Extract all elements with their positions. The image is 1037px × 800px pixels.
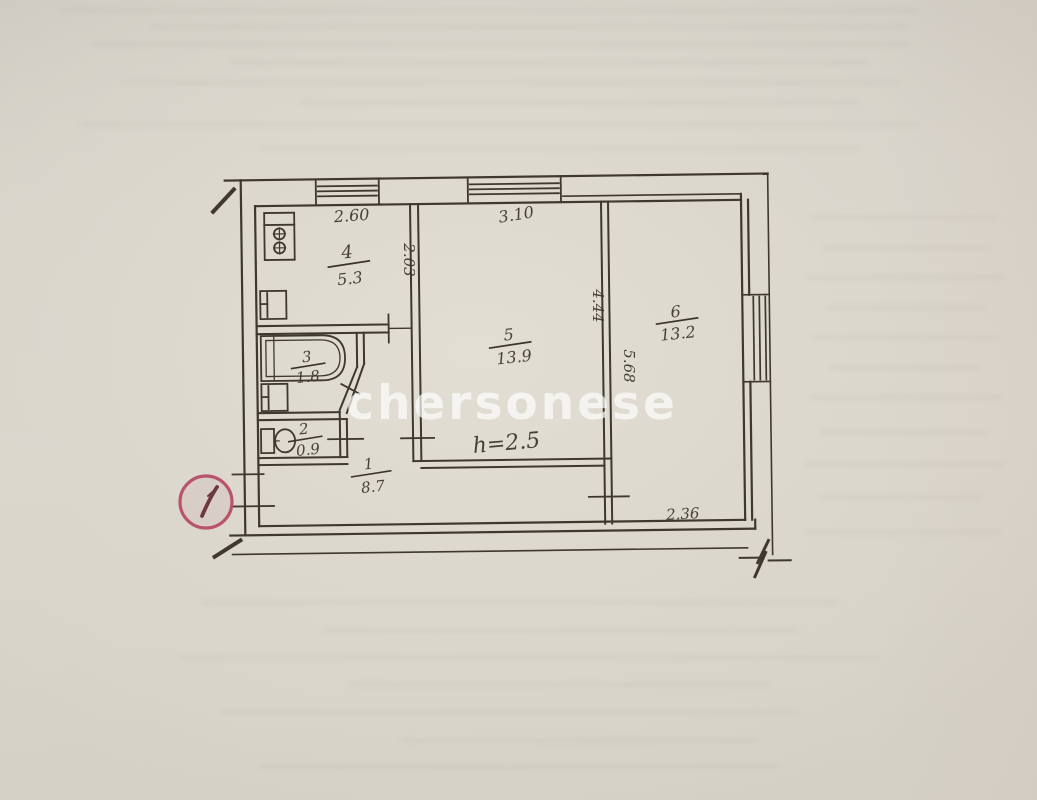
entrance-marker — [180, 476, 232, 528]
room-label-room5: 5 13.9 — [487, 323, 534, 369]
window-room5 — [468, 176, 561, 203]
kitchen-sink-icon — [260, 291, 286, 319]
wall-bottom — [230, 520, 755, 555]
break-mark-bottom-right — [739, 540, 790, 577]
room-number: 4 — [339, 242, 354, 264]
room-area: 8.7 — [360, 476, 386, 496]
room-number: 3 — [301, 348, 312, 367]
dimension-room6-bottom: 2.36 — [665, 504, 701, 524]
wall-bath-wc-divider — [258, 412, 347, 420]
stove-icon — [264, 213, 295, 260]
room-number: 1 — [363, 455, 374, 474]
watermark-text: chersonese — [346, 376, 678, 431]
room-area: 0.9 — [295, 439, 321, 459]
room-label-kitchen: 4 5.3 — [325, 240, 373, 290]
window-room6 — [742, 294, 770, 381]
wall-right-outer-boundary — [768, 173, 773, 554]
wall-room5-bottom — [413, 459, 611, 469]
washbasin-icon — [261, 384, 287, 411]
room-number: 2 — [297, 420, 309, 439]
room-area: 5.3 — [336, 268, 363, 290]
wall-top — [225, 173, 768, 206]
dimension-room5-side: 4.44 — [589, 288, 607, 322]
dimension-room5-window: 3.10 — [497, 202, 535, 226]
wall-left — [241, 180, 260, 535]
ceiling-height-note: h=2.5 — [472, 428, 542, 459]
room-label-room6: 6 13.2 — [654, 300, 701, 345]
room-label-hallway: 1 8.7 — [349, 453, 394, 498]
room-area: 13.2 — [659, 322, 696, 345]
room-area: 13.9 — [495, 346, 532, 369]
room-area: 1.8 — [295, 367, 321, 387]
dimension-kitchen-window: 2.60 — [332, 205, 370, 227]
window-kitchen — [316, 179, 379, 206]
room-number: 6 — [670, 302, 682, 322]
room-label-wc: 2 0.9 — [286, 418, 325, 460]
entrance-marker-circle — [180, 476, 232, 528]
floor-plan-drawing: 2.60 3.10 2.03 4.44 5.68 2.36 h=2.5 4 5.… — [0, 0, 1037, 800]
entrance-door-jambs — [231, 474, 274, 507]
dimension-kitchen-side: 2.03 — [400, 242, 418, 276]
scanned-floor-plan-page: 2.60 3.10 2.03 4.44 5.68 2.36 h=2.5 4 5.… — [0, 0, 1037, 800]
room-number: 5 — [503, 325, 515, 345]
wall-room6-right — [741, 194, 752, 520]
